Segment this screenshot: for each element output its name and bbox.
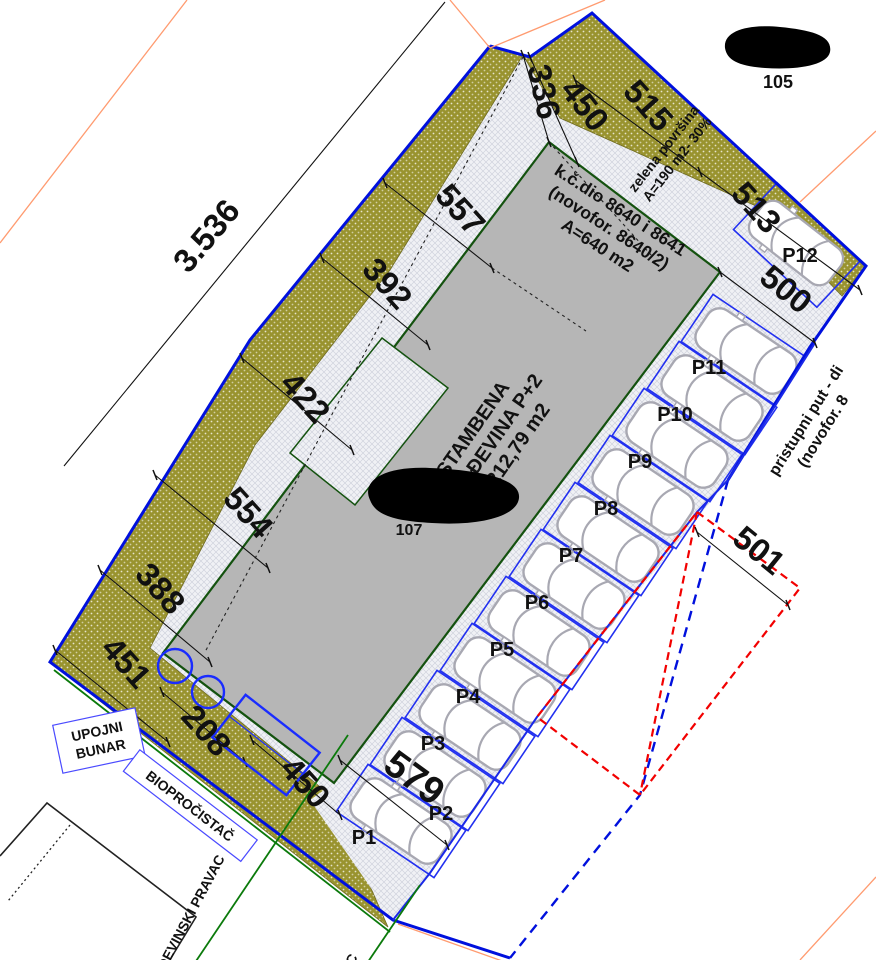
svg-text:P7: P7 <box>559 545 583 567</box>
svg-text:P1: P1 <box>352 827 376 849</box>
svg-text:P3: P3 <box>421 733 445 755</box>
parcel-number-105: 105 <box>763 72 793 92</box>
gradevinski-pravac-bottom-label: GRAĐEVINSKI PRAVAC <box>272 951 360 960</box>
svg-text:P9: P9 <box>628 451 652 473</box>
site-plan-screenshot: 336 450 515 513 500 501 557 392 422 554 … <box>0 0 876 960</box>
parcel-number-107: 107 <box>396 522 423 539</box>
dim-3536: 3.536 <box>165 192 246 279</box>
svg-text:P5: P5 <box>490 639 514 661</box>
redaction-blob-top <box>725 26 830 68</box>
svg-text:P10: P10 <box>657 404 693 426</box>
svg-text:P8: P8 <box>594 498 618 520</box>
svg-text:P4: P4 <box>456 686 481 708</box>
svg-text:P6: P6 <box>525 592 549 614</box>
svg-text:P11: P11 <box>692 357 726 379</box>
svg-text:P2: P2 <box>429 803 453 825</box>
gradevinski-pravac-left-label: GRAĐEVINSKI PRAVAC <box>139 852 227 960</box>
site-plan-drawing: 336 450 515 513 500 501 557 392 422 554 … <box>0 0 876 960</box>
dim-501: 501 <box>726 518 792 581</box>
neighbour-building-outline <box>0 803 196 958</box>
svg-text:P12: P12 <box>782 245 818 267</box>
